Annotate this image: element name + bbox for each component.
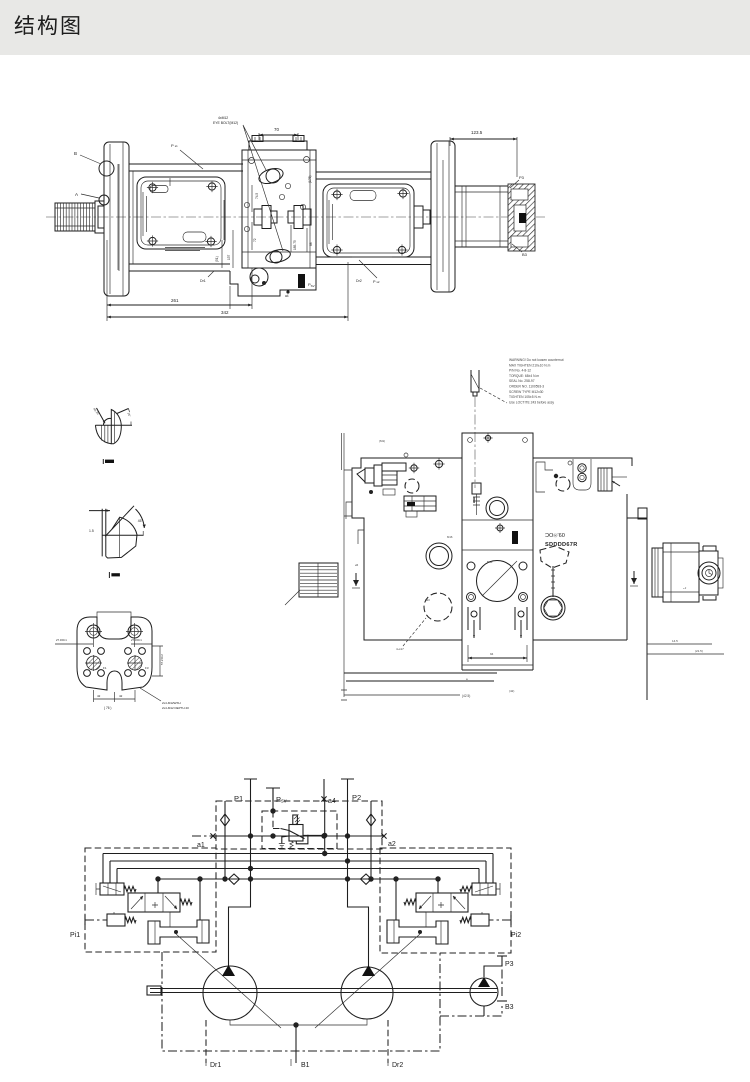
svg-text:P3: P3 [519,175,525,180]
svg-text:B ⌀2: B ⌀2 [487,560,493,564]
svg-text:72: 72 [253,238,257,242]
svg-text:94: 94 [490,652,494,656]
svg-text:a4: a4 [285,294,289,298]
svg-text:F1: F1 [103,666,107,670]
svg-text:45°: 45° [138,519,144,523]
svg-text:⌀20: ⌀20 [425,598,430,602]
svg-text:Dr1: Dr1 [200,279,206,283]
svg-text:EYE BOLT(M12): EYE BOLT(M12) [213,121,238,125]
svg-text:70: 70 [274,127,280,132]
svg-text:4xM12: 4xM12 [218,116,228,120]
svg-text:B1: B1 [301,1062,310,1069]
svg-text:1.5: 1.5 [89,529,94,533]
svg-text:42: 42 [97,694,101,698]
svg-text:14.5: 14.5 [672,639,678,643]
svg-text:Psv: Psv [276,795,287,805]
svg-text:Dr2: Dr2 [392,1062,403,1069]
svg-text:(42): (42) [509,689,514,693]
svg-text:Use LOCTITE 243 before assy: Use LOCTITE 243 before assy [509,400,554,404]
svg-text:TORQUE: 68±4 N.m: TORQUE: 68±4 N.m [509,374,539,378]
svg-text:( 76 ): ( 76 ) [104,706,111,710]
svg-text:123.5: 123.5 [471,130,483,135]
svg-text:2x4-M12WXH: 2x4-M12WXH [162,701,181,705]
svg-text:(42.5): (42.5) [462,694,470,698]
svg-text:P1: P1 [234,794,243,803]
svg-text:35°: 35° [127,412,132,417]
svg-text:R1.25: R1.25 [92,407,100,416]
svg-text:42: 42 [119,694,123,698]
svg-text:185.75: 185.75 [293,240,297,250]
svg-text:Pi2: Pi2 [511,932,521,939]
svg-text:P3: P3 [505,961,514,968]
svg-text:137: 137 [227,254,231,260]
svg-text:(51): (51) [215,256,219,262]
svg-text:a: a [466,677,468,681]
svg-text:A: A [75,192,78,197]
svg-text:ƆOⓃ’60: ƆOⓃ’60 [545,532,565,539]
svg-text:PSV: PSV [308,282,315,288]
svg-text:WARNING! Do not loosen counter: WARNING! Do not loosen counternut [509,358,564,362]
svg-text:B3: B3 [522,252,528,257]
svg-text:27.0±0.1: 27.0±0.1 [56,638,67,642]
svg-text:342: 342 [221,310,229,315]
svg-text:27.0±0.1: 27.0±0.1 [131,638,142,642]
svg-text:TIGHTEN 105±5 N.m: TIGHTEN 105±5 N.m [509,395,541,399]
svg-text:SEAL No. 258-97: SEAL No. 258-97 [509,379,535,383]
svg-text:Dr2: Dr2 [356,279,362,283]
svg-text:F3: F3 [145,666,149,670]
svg-text:(M1): (M1) [379,439,385,443]
svg-text:(21.5): (21.5) [695,649,703,653]
svg-text:⌐J: ⌐J [683,586,687,590]
svg-text:4-⌀17: 4-⌀17 [396,647,404,651]
svg-text:B3: B3 [505,1004,514,1011]
svg-text:57.2±0.2: 57.2±0.2 [160,654,164,665]
svg-text:SCREW TYPE M12x30: SCREW TYPE M12x30 [509,390,544,394]
svg-text:MAX TIGHTEN 210±10 N.m: MAX TIGHTEN 210±10 N.m [509,363,551,367]
svg-text:P s1: P s1 [171,143,178,148]
svg-text:ORDER NO. 1100593-3: ORDER NO. 1100593-3 [509,385,544,389]
svg-text:⌀6: ⌀6 [355,563,359,567]
svg-text:74.5: 74.5 [255,193,259,199]
svg-text:Dr1: Dr1 [210,1062,221,1069]
svg-text:P/N No. 4-8-12: P/N No. 4-8-12 [509,369,531,373]
svg-text:88: 88 [309,242,313,246]
svg-text:Pi1: Pi1 [70,932,80,939]
svg-text:P s2: P s2 [373,280,380,284]
svg-text:(178): (178) [308,176,312,183]
svg-text:B: B [74,151,77,156]
svg-text:a2: a2 [388,841,396,848]
svg-text:261: 261 [171,298,179,303]
svg-text:2x4-M12 DEPTH 20: 2x4-M12 DEPTH 20 [162,706,189,710]
svg-text:M16: M16 [447,535,453,539]
